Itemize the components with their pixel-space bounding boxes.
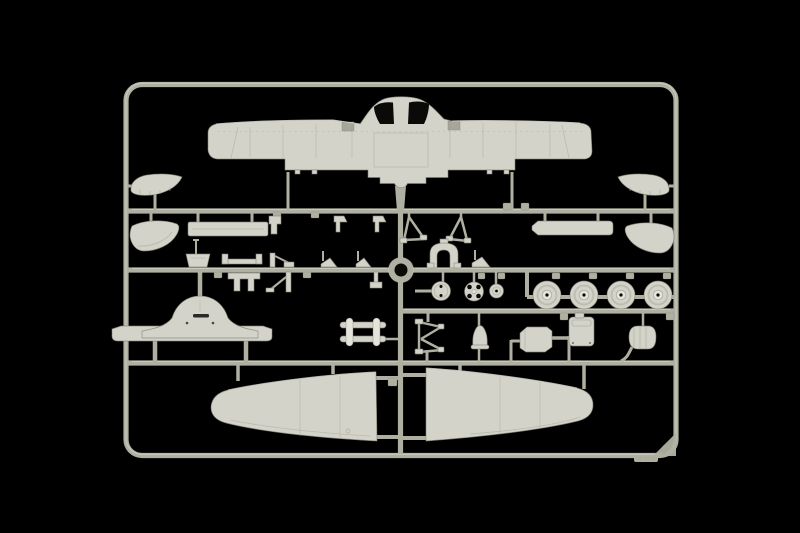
wheel [533, 281, 561, 309]
wheel [607, 281, 635, 309]
small-disc-part [490, 284, 504, 298]
lid-box-part [569, 313, 594, 346]
wheel [644, 281, 672, 309]
runner-ring [389, 258, 414, 283]
cowl-scoop-part [629, 326, 656, 349]
hub-wheel-part [465, 282, 484, 301]
bulkhead-slot [193, 314, 209, 318]
tank-box-part [520, 327, 552, 352]
wheel [570, 281, 598, 309]
brand-tab [634, 455, 658, 462]
photo-stage [0, 0, 800, 533]
spar-bar [188, 222, 268, 236]
runner-row-c [400, 310, 674, 312]
flat-strip [532, 221, 613, 235]
sprue-photo [0, 0, 800, 533]
